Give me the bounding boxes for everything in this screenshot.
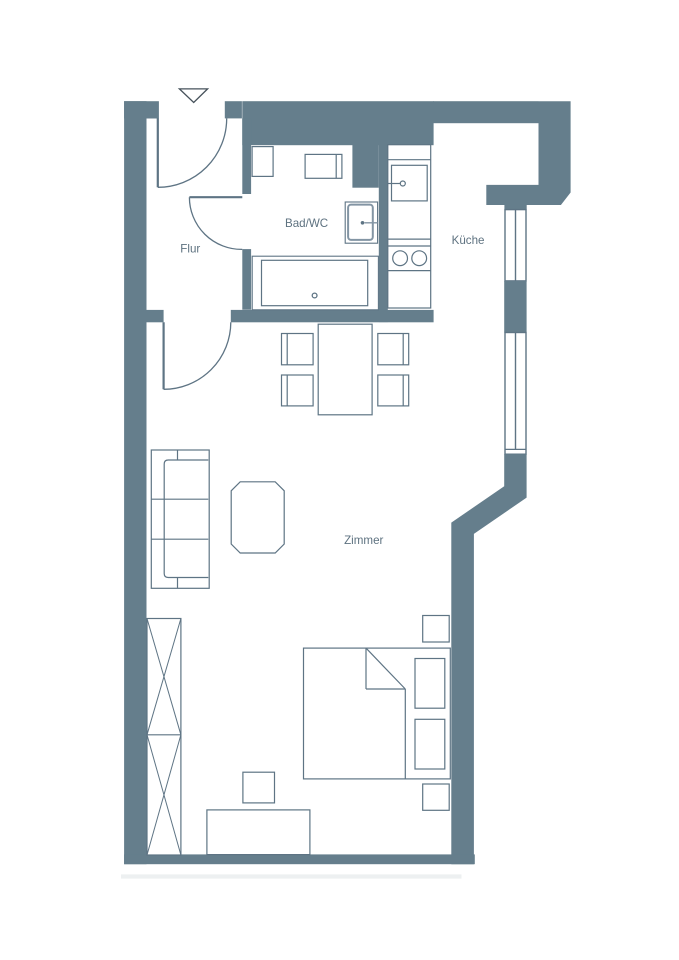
svg-text:Küche: Küche bbox=[452, 234, 485, 247]
svg-text:Flur: Flur bbox=[180, 243, 200, 256]
svg-text:Zimmer: Zimmer bbox=[344, 534, 383, 547]
svg-text:Bad/WC: Bad/WC bbox=[285, 217, 328, 230]
